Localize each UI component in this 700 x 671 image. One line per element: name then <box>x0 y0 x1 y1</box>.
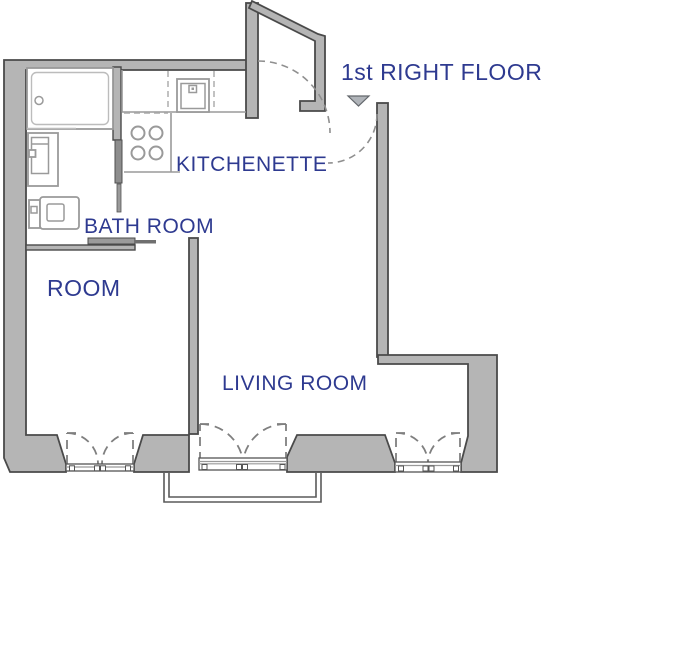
room-pocket-door-bar <box>88 238 135 244</box>
kitchen-sink-icon <box>177 79 209 112</box>
room-pocket-door-rail <box>135 240 156 244</box>
balcony <box>164 473 321 502</box>
stove-icon <box>124 113 180 172</box>
bathroom-fixtures <box>27 68 113 229</box>
wall-room-living-divider <box>189 238 198 434</box>
wall-vestibule-left <box>246 3 258 118</box>
window-living-room-center <box>199 424 287 470</box>
vanity-sink-icon <box>28 133 58 186</box>
floor-plan-svg: 1st RIGHT FLOOR KITCHENETTE BATH ROOM RO… <box>0 0 700 671</box>
floor-plan-page: 1st RIGHT FLOOR KITCHENETTE BATH ROOM RO… <box>0 0 700 671</box>
apartment-door-swing-arc <box>328 114 377 163</box>
window-room <box>66 433 134 471</box>
room-label: ROOM <box>47 275 121 301</box>
toilet-icon <box>29 197 79 229</box>
wall-room-north <box>26 245 135 250</box>
wall-bottom-block-right <box>287 435 395 472</box>
wall-living-east-upper <box>377 103 388 357</box>
wall-entrance-angled <box>249 1 325 111</box>
living-room-label: LIVING ROOM <box>222 372 368 395</box>
bathroom-door-bar <box>117 184 121 212</box>
wall-bath-kitchen-divider <box>113 67 121 140</box>
kitchenette-label: KITCHENETTE <box>176 153 327 176</box>
floor-title-label: 1st RIGHT FLOOR <box>341 59 542 85</box>
wall-bottom-block-middle <box>134 435 189 472</box>
bathroom-label: BATH ROOM <box>84 215 214 238</box>
entrance-marker-triangle-icon <box>348 96 369 106</box>
bathroom-door-leaf <box>115 140 122 183</box>
bathtub-icon <box>27 68 113 129</box>
window-living-room-right <box>395 433 461 472</box>
